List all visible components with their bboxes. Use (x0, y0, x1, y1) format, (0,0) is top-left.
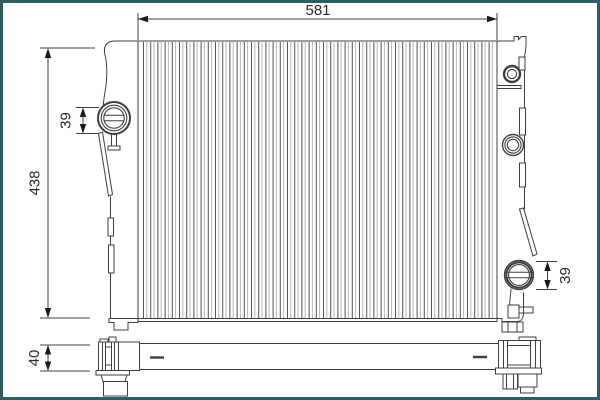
left-drain-foot (108, 146, 120, 150)
profile-right-end (496, 337, 542, 393)
profile-left-end (96, 337, 140, 396)
right-port-small (504, 66, 520, 82)
left-support-strut (99, 132, 113, 196)
left-tank (98, 41, 138, 330)
arrowhead-down (80, 124, 86, 134)
arrowhead-up (45, 48, 51, 58)
profile-left-foot-taper (101, 375, 127, 382)
arrowhead-right (487, 16, 497, 22)
left-drain-stem (108, 134, 120, 150)
technical-drawing-canvas: 581 438 39 39 40 (0, 0, 600, 400)
left-clip-upper (108, 218, 114, 236)
left-tank-upper-edge (102, 41, 138, 110)
right-lower-edge (510, 289, 512, 305)
arrowhead-left (138, 16, 148, 22)
arrowhead-up (45, 345, 51, 355)
arrowhead-up (80, 108, 86, 118)
right-bottom-fitting-bar (519, 307, 533, 313)
left-clip-lower (109, 245, 115, 273)
dim-depth-label: 40 (26, 350, 43, 367)
right-tank (497, 37, 537, 333)
left-tank-bottom-foot (109, 319, 138, 331)
profile-right-flange (496, 368, 542, 374)
dim-right-cap-label: 39 (557, 267, 574, 284)
dim-width-label: 581 (305, 2, 330, 19)
profile-right-tab (519, 337, 536, 341)
profile-right-foot-small (503, 374, 518, 389)
right-port-medium (503, 135, 524, 156)
core-fins (144, 42, 493, 318)
dimension-right-cap: 39 (536, 262, 574, 290)
arrowhead-down (45, 308, 51, 318)
dimension-height: 438 (27, 48, 96, 318)
profile-right-foot-large (518, 374, 537, 387)
profile-right-foot-step (521, 387, 535, 393)
dim-left-neck-label: 39 (58, 112, 75, 129)
right-clip-low (520, 163, 526, 187)
right-bottom-fitting (508, 305, 519, 318)
arrowhead-down (544, 280, 550, 290)
right-support-strut (520, 208, 538, 256)
profile-left-flange (96, 371, 130, 376)
arrowhead-down (45, 362, 51, 372)
right-clip-top (519, 57, 525, 70)
arrowhead-up (544, 262, 550, 272)
radiator-technical-drawing: 581 438 39 39 40 (0, 0, 600, 400)
dim-height-label: 438 (27, 170, 44, 195)
filler-neck-outer-ring (98, 102, 130, 134)
dimension-left-neck: 39 (58, 108, 100, 134)
right-clip-mid (520, 108, 526, 135)
right-tank-top-edge (497, 37, 526, 58)
left-tank-lower-edge (108, 197, 114, 318)
bottom-view (96, 337, 542, 396)
front-view (98, 37, 537, 333)
profile-left-tabs (100, 337, 116, 342)
right-drain-block (502, 322, 523, 332)
filler-neck-left (98, 102, 130, 134)
profile-left-foot (104, 382, 128, 397)
pressure-cap (505, 261, 534, 290)
dimension-width: 581 (138, 2, 497, 40)
dimension-depth: 40 (26, 345, 90, 371)
frame-border (2, 2, 599, 399)
radiator-core (138, 41, 497, 322)
